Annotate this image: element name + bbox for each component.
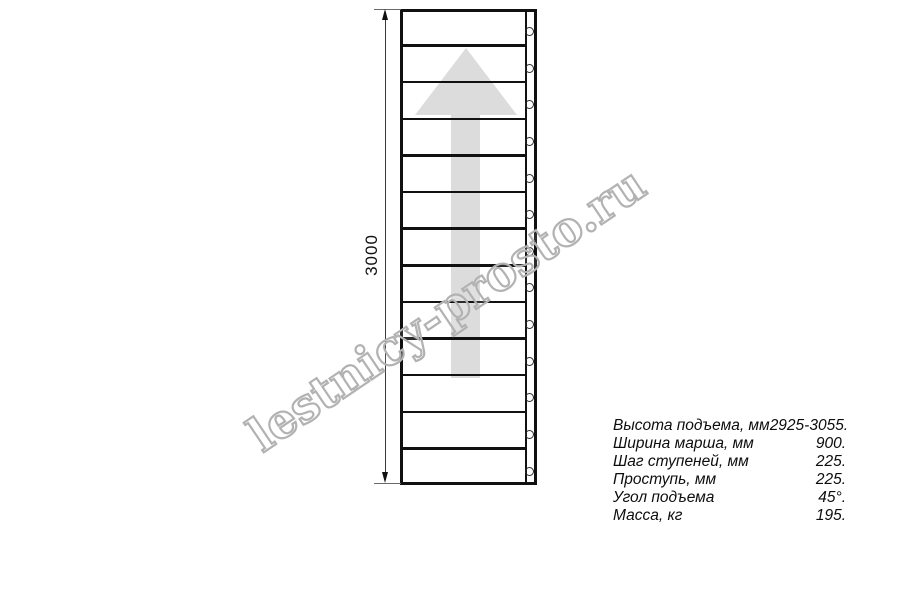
drawing-canvas: 3000 lestnicy-prosto.ru Высота подъема, … [0,0,900,600]
spec-label: Проступь, мм [613,471,716,489]
bolt-hole-icon [525,137,534,146]
extension-line-top [374,9,401,10]
spec-value: 900. [816,435,846,453]
step-line [403,411,526,414]
spec-row: Ширина марша, мм 900. [613,435,846,453]
spec-table: Высота подъема, мм 2925-3055. Ширина мар… [613,417,846,526]
spec-value: 45°. [818,489,846,507]
bolt-hole-icon [525,467,534,476]
spec-row: Угол подъема 45°. [613,489,846,507]
extension-line-bottom [374,483,401,484]
spec-row: Высота подъема, мм 2925-3055. [613,417,846,435]
spec-row: Шаг ступеней, мм 225. [613,453,846,471]
dimension-arrow-up-icon [382,9,388,20]
bolt-hole-icon [525,174,534,183]
spec-value: 2925-3055. [770,417,848,435]
spec-label: Масса, кг [613,507,682,525]
step-line [403,44,526,47]
dimension-line [385,12,387,480]
step-line [403,118,526,121]
step-line [403,154,526,157]
spec-label: Шаг ступеней, мм [613,453,749,471]
bolt-hole-icon [525,64,534,73]
bolt-hole-icon [525,357,534,366]
bolt-hole-icon [525,430,534,439]
step-line [403,374,526,377]
spec-label: Угол подъема [613,489,714,507]
step-line [403,191,526,194]
spec-row: Масса, кг 195. [613,507,846,525]
spec-value: 225. [816,471,846,489]
bolt-hole-icon [525,27,534,36]
bolt-hole-icon [525,100,534,109]
bolt-hole-icon [525,320,534,329]
spec-value: 225. [816,453,846,471]
step-line [403,227,526,230]
spec-label: Высота подъема, мм [613,417,770,435]
spec-label: Ширина марша, мм [613,435,754,453]
spec-row: Проступь, мм 225. [613,471,846,489]
step-line [403,81,526,84]
step-line [403,447,526,450]
bolt-hole-icon [525,393,534,402]
spec-value: 195. [816,507,846,525]
dimension-label: 3000 [362,234,382,276]
dimension-arrow-down-icon [382,472,388,483]
